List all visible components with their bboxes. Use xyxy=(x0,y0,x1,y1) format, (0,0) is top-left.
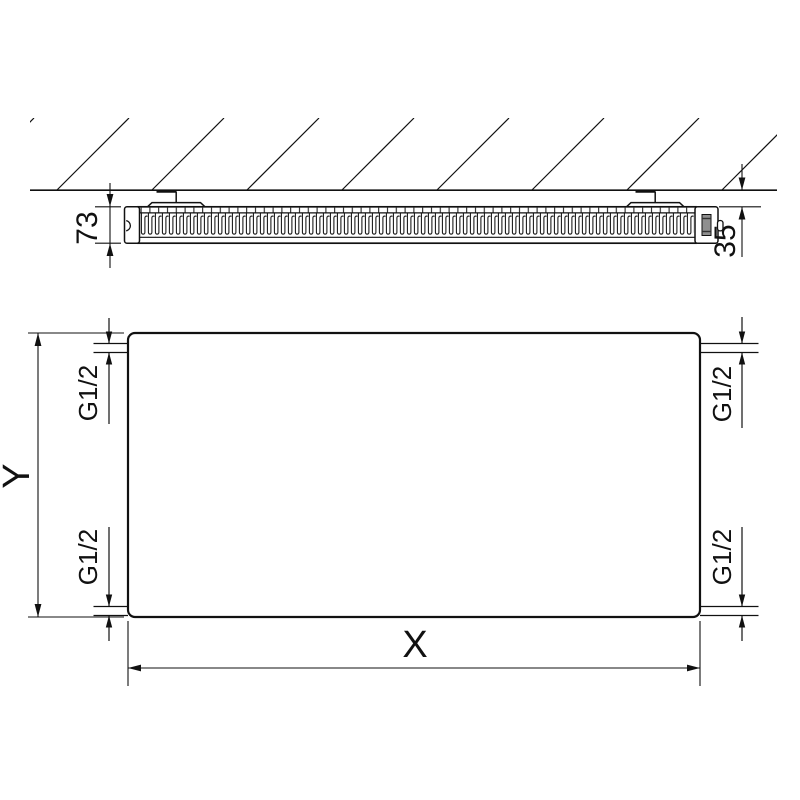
wall-gap-dimension-label: 35 xyxy=(709,211,743,271)
radiator-dimension-diagram: 73 35 Y X G1/2 G1/2 G1/2 G1/2 xyxy=(0,0,800,800)
radiator-fin-texture xyxy=(141,213,695,236)
wall-bracket-left-icon xyxy=(148,191,206,206)
thread-label-top-left: G1/2 xyxy=(73,358,103,428)
wall-bracket-right-icon xyxy=(627,191,685,206)
thread-label-bottom-left: G1/2 xyxy=(73,522,103,592)
thread-label-bottom-right: G1/2 xyxy=(707,522,737,592)
width-dimension-label: X xyxy=(385,625,445,665)
radiator-weld-ticks xyxy=(141,208,695,213)
wall-hatching xyxy=(0,118,794,190)
drawing-canvas xyxy=(0,0,800,800)
radiator-front-view xyxy=(128,333,700,617)
thread-label-top-right: G1/2 xyxy=(707,359,737,429)
height-dimension-label: Y xyxy=(0,454,37,498)
depth-dimension-label: 73 xyxy=(71,198,105,258)
radiator-side-view xyxy=(125,207,724,243)
end-cap-left xyxy=(125,207,140,243)
